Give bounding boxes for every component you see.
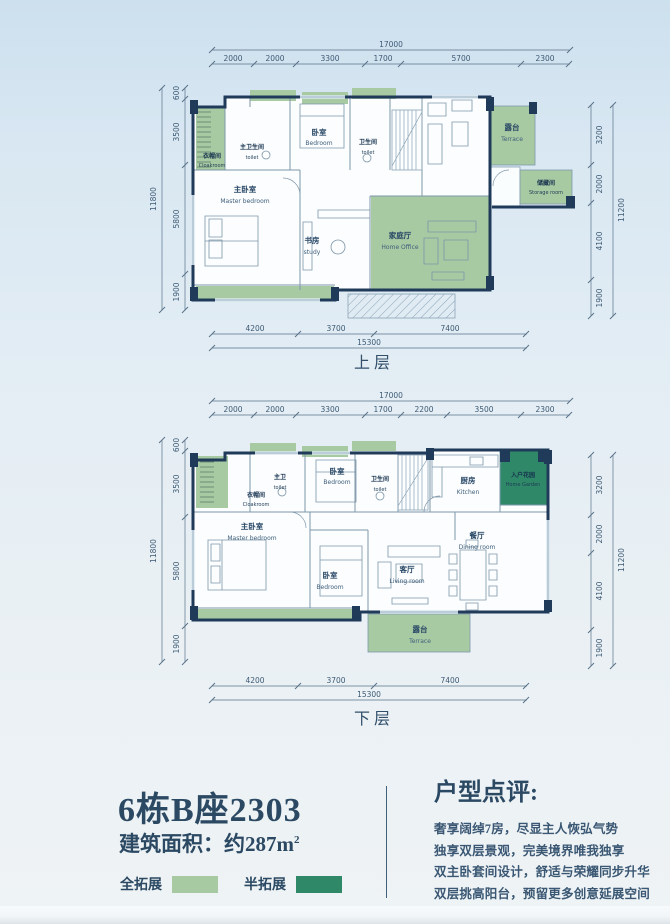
upper-dim-bottom-0: 4200	[245, 324, 264, 333]
svg-text:toilet: toilet	[274, 485, 287, 491]
upper-dim-right-3: 1900	[595, 288, 604, 307]
svg-text:入户花园: 入户花园	[510, 471, 535, 479]
upper-dim-left-3: 1900	[172, 282, 181, 301]
svg-text:卧室: 卧室	[330, 466, 345, 476]
page-bottom-band	[0, 906, 670, 924]
lower-floor-label: 下层	[354, 711, 394, 728]
lower-dim-top-2: 3300	[320, 405, 339, 414]
svg-text:Cloakroom: Cloakroom	[243, 502, 270, 508]
upper-void-hatch	[348, 294, 455, 318]
upper-dim-bottom-2: 7400	[440, 324, 459, 333]
lower-dim-top-total: 17000	[379, 391, 403, 400]
upper-home-office-zone	[371, 196, 489, 289]
upper-dim-right-2: 4100	[595, 231, 604, 250]
svg-text:Cloakroom: Cloakroom	[199, 163, 226, 169]
lower-dim-right-2: 4100	[595, 581, 604, 600]
upper-floor-plan: 衣帽间 Cloakroom 主卫生间 toilet 卧室 Bedroom 卫生间…	[149, 40, 626, 372]
lower-balcony-strip	[196, 609, 359, 619]
svg-text:Bedroom: Bedroom	[316, 584, 343, 591]
svg-text:study: study	[304, 249, 321, 256]
upper-dim-bottom-1: 3700	[326, 324, 345, 333]
upper-dim-left-2: 5800	[172, 209, 181, 228]
svg-text:toilet: toilet	[246, 155, 259, 161]
floor-plans-canvas: 衣帽间 Cloakroom 主卫生间 toilet 卧室 Bedroom 卫生间…	[0, 0, 670, 745]
svg-text:主卧室: 主卧室	[234, 184, 257, 194]
upper-dim-bottom-total: 15300	[357, 338, 381, 347]
upper-dim-top-2: 3300	[320, 54, 339, 63]
svg-text:Master bedroom: Master bedroom	[220, 198, 269, 205]
upper-storage-zone	[520, 170, 572, 204]
legend-half-expand-swatch	[296, 876, 342, 893]
building-area: 建筑面积：约287m2	[119, 828, 300, 858]
svg-text:储藏间: 储藏间	[536, 179, 555, 187]
lower-dim-top-4: 2200	[414, 405, 433, 414]
upper-floor-label: 上层	[354, 354, 394, 372]
lower-dim-bottom-2: 7400	[440, 676, 459, 685]
lower-dim-top-5: 3500	[474, 405, 493, 414]
upper-dim-top-0: 2000	[223, 54, 242, 63]
svg-text:toilet: toilet	[362, 150, 375, 156]
floor-plan-page: 衣帽间 Cloakroom 主卫生间 toilet 卧室 Bedroom 卫生间…	[0, 0, 670, 924]
svg-text:餐厅: 餐厅	[469, 530, 485, 540]
upper-dim-left-0: 600	[172, 86, 181, 101]
upper-cloak-hatch	[197, 110, 211, 170]
svg-text:主卫: 主卫	[274, 473, 286, 481]
upper-dim-left-total: 11800	[149, 187, 158, 211]
lower-dim-top-0: 2000	[223, 405, 242, 414]
lower-dim-right-1: 2000	[595, 524, 604, 543]
legend-full-expand-swatch	[172, 876, 218, 893]
upper-dim-top-5: 2300	[535, 54, 554, 63]
expansion-legend: 全拓展 半拓展	[120, 874, 342, 894]
review-line: 双层挑高阳台，预留更多创意延展空间	[434, 884, 666, 906]
lower-dim-right-3: 1900	[595, 638, 604, 657]
review-line: 奢享阔绰7房，尽显主人恢弘气势	[434, 819, 666, 841]
svg-text:主卧室: 主卧室	[241, 521, 264, 531]
lower-dim-right-total: 11200	[617, 548, 626, 572]
svg-text:卧室: 卧室	[312, 127, 327, 137]
lower-dim-left-3: 1900	[172, 634, 181, 653]
svg-text:主卫生间: 主卫生间	[240, 143, 264, 151]
upper-storage-corridor	[490, 167, 520, 207]
upper-balcony-strip	[196, 286, 334, 299]
svg-text:客厅: 客厅	[399, 564, 415, 574]
svg-text:衣帽间: 衣帽间	[247, 491, 265, 499]
lower-dim-bottom-0: 4200	[245, 676, 264, 685]
upper-dim-left-1: 3500	[172, 122, 181, 141]
svg-text:Home Office: Home Office	[381, 244, 418, 251]
upper-dim-top-4: 5700	[451, 54, 470, 63]
area-superscript: 2	[294, 834, 300, 846]
svg-text:露台: 露台	[413, 624, 428, 634]
upper-dim-top-total: 17000	[379, 40, 403, 49]
vertical-divider	[386, 786, 387, 898]
lower-dim-top-1: 2000	[265, 405, 284, 414]
lower-dim-left-2: 5800	[172, 561, 181, 580]
lower-dim-bottom-total: 15300	[357, 690, 381, 699]
lower-dim-bottom-1: 3700	[326, 676, 345, 685]
review-line: 独享双层景观，完美境界唯我独享	[434, 841, 666, 863]
svg-text:Storage room: Storage room	[529, 190, 563, 196]
svg-text:toilet: toilet	[374, 487, 387, 493]
unit-title: 6栋B座2303	[118, 782, 302, 831]
review-line: 双主卧套间设计，舒适与荣耀同步升华	[434, 862, 666, 884]
svg-text:Living room: Living room	[389, 578, 424, 585]
svg-text:衣帽间: 衣帽间	[203, 152, 221, 160]
svg-text:露台: 露台	[505, 122, 520, 132]
upper-dim-top-1: 2000	[265, 54, 284, 63]
lower-dim-right-0: 3200	[595, 475, 604, 494]
lower-dim-left-0: 600	[172, 438, 181, 453]
svg-text:Terrace: Terrace	[408, 638, 431, 645]
svg-text:家庭厅: 家庭厅	[389, 230, 412, 240]
svg-text:Kitchen: Kitchen	[457, 489, 480, 496]
svg-text:Dining room: Dining room	[459, 544, 496, 551]
svg-text:Terrace: Terrace	[500, 136, 523, 143]
lower-green-patch-3	[352, 441, 396, 451]
review-block: 户型点评: 奢享阔绰7房，尽显主人恢弘气势 独享双层景观，完美境界唯我独享 双主…	[434, 772, 666, 905]
area-text: 建筑面积：约287m	[119, 832, 294, 856]
lower-dim-top-3: 1700	[373, 405, 392, 414]
svg-text:卧室: 卧室	[323, 570, 338, 580]
svg-text:卫生间: 卫生间	[359, 138, 377, 146]
legend-half-expand-label: 半拓展	[244, 874, 286, 894]
upper-dim-right-0: 3200	[595, 125, 604, 144]
svg-text:Bedroom: Bedroom	[323, 479, 350, 486]
review-title: 户型点评:	[434, 772, 666, 807]
svg-text:卫生间: 卫生间	[371, 475, 389, 483]
svg-text:Master bedroom: Master bedroom	[227, 535, 276, 542]
upper-dim-right-1: 2000	[595, 174, 604, 193]
upper-dim-right-total: 11200	[617, 198, 626, 222]
svg-text:Bedroom: Bedroom	[305, 140, 332, 147]
lower-dim-top-6: 2300	[535, 405, 554, 414]
lower-dim-left-total: 11800	[149, 539, 158, 563]
svg-text:Home Garden: Home Garden	[506, 482, 541, 488]
svg-text:厨房: 厨房	[461, 475, 476, 485]
lower-cloak-hatch	[200, 458, 214, 506]
upper-dim-top-3: 1700	[373, 54, 392, 63]
info-section: 6栋B座2303 建筑面积：约287m2 全拓展 半拓展 户型点评: 奢享阔绰7…	[0, 768, 670, 908]
lower-dim-left-1: 3500	[172, 474, 181, 493]
legend-full-expand-label: 全拓展	[120, 874, 162, 894]
lower-floor-plan: 衣帽间 Cloakroom 主卫 toilet 卧室 Bedroom 卫生间 t…	[149, 391, 626, 728]
svg-text:书房: 书房	[305, 235, 320, 245]
